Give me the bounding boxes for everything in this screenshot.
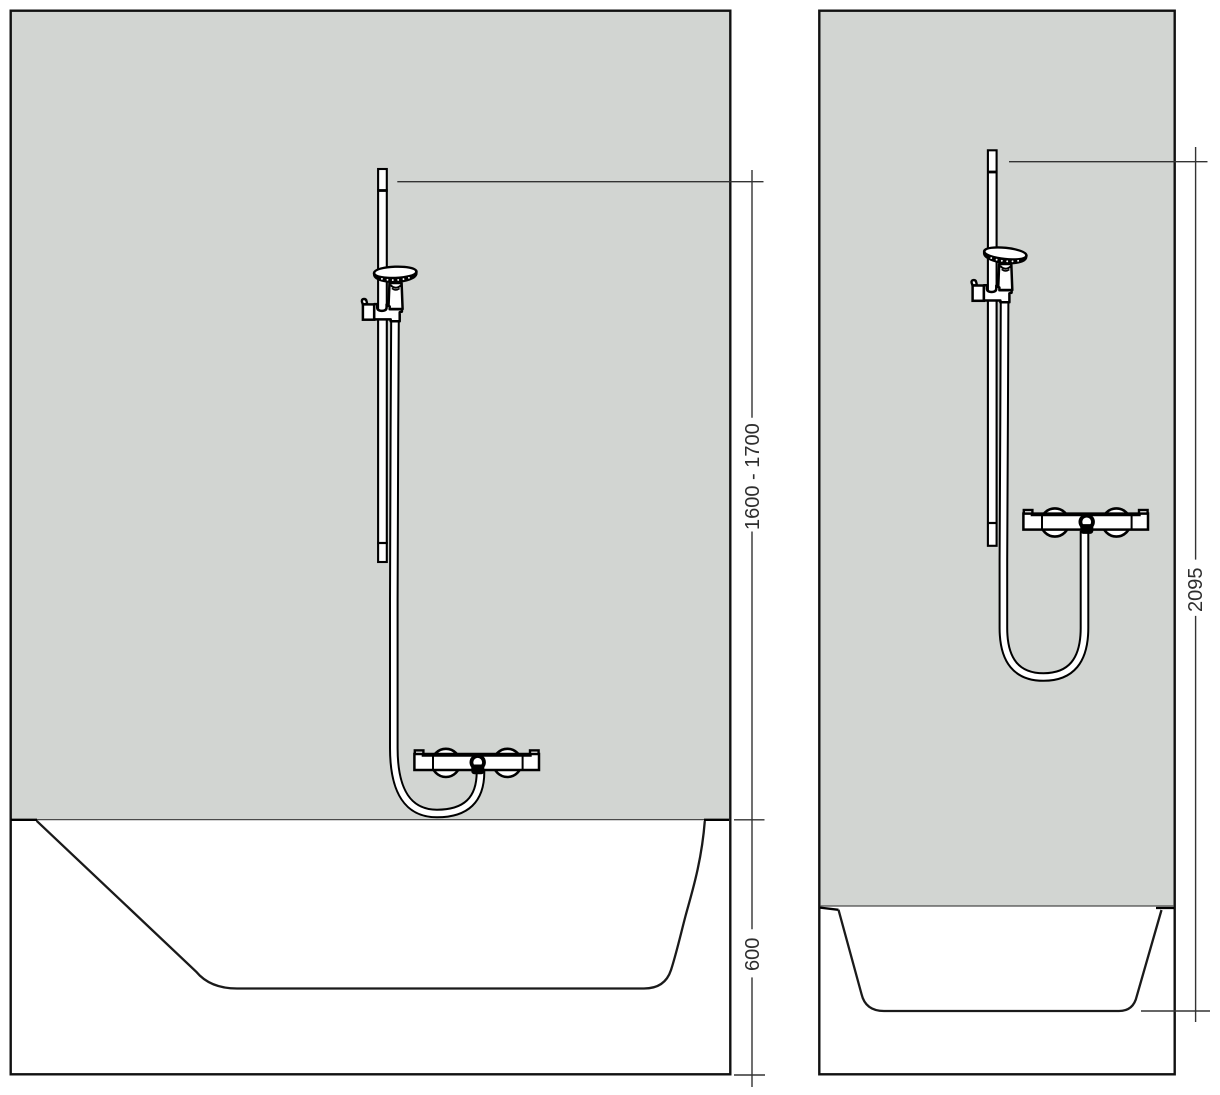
svg-text:2095: 2095 xyxy=(1185,568,1207,613)
svg-text:1600 - 1700: 1600 - 1700 xyxy=(742,423,764,530)
svg-text:600: 600 xyxy=(742,938,764,971)
